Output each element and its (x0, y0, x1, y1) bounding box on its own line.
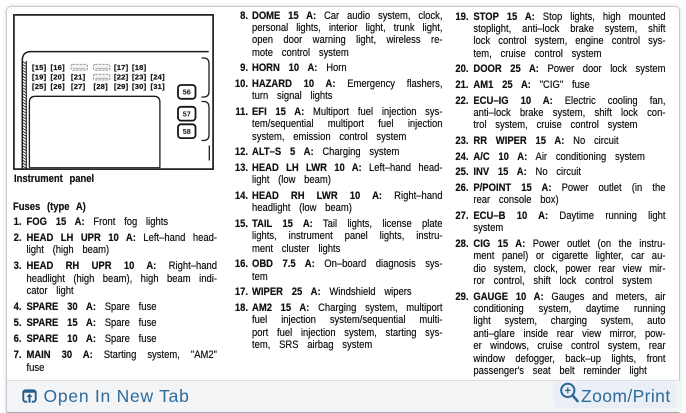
svg-text:[27]: [27] (71, 82, 86, 91)
svg-text:[23]: [23] (132, 73, 147, 82)
svg-text:[20]: [20] (51, 73, 66, 82)
svg-text:[19]: [19] (32, 73, 47, 82)
svg-text:58: 58 (183, 127, 191, 136)
svg-text:[30]: [30] (132, 82, 147, 91)
svg-text:[16]: [16] (51, 63, 66, 72)
svg-text:[29]: [29] (114, 82, 129, 91)
svg-text:57: 57 (183, 110, 191, 119)
svg-text:[28]: [28] (94, 82, 109, 91)
svg-text:[31]: [31] (151, 82, 166, 91)
svg-text:[25]: [25] (32, 82, 47, 91)
svg-text:[26]: [26] (51, 82, 66, 91)
svg-text:[18]: [18] (132, 63, 147, 72)
svg-text:[22]: [22] (114, 73, 129, 82)
svg-text:[21]: [21] (71, 73, 86, 82)
svg-text:[17]: [17] (114, 63, 129, 72)
svg-text:56: 56 (183, 88, 191, 97)
svg-text:[15]: [15] (32, 63, 47, 72)
svg-text:[24]: [24] (151, 73, 166, 82)
